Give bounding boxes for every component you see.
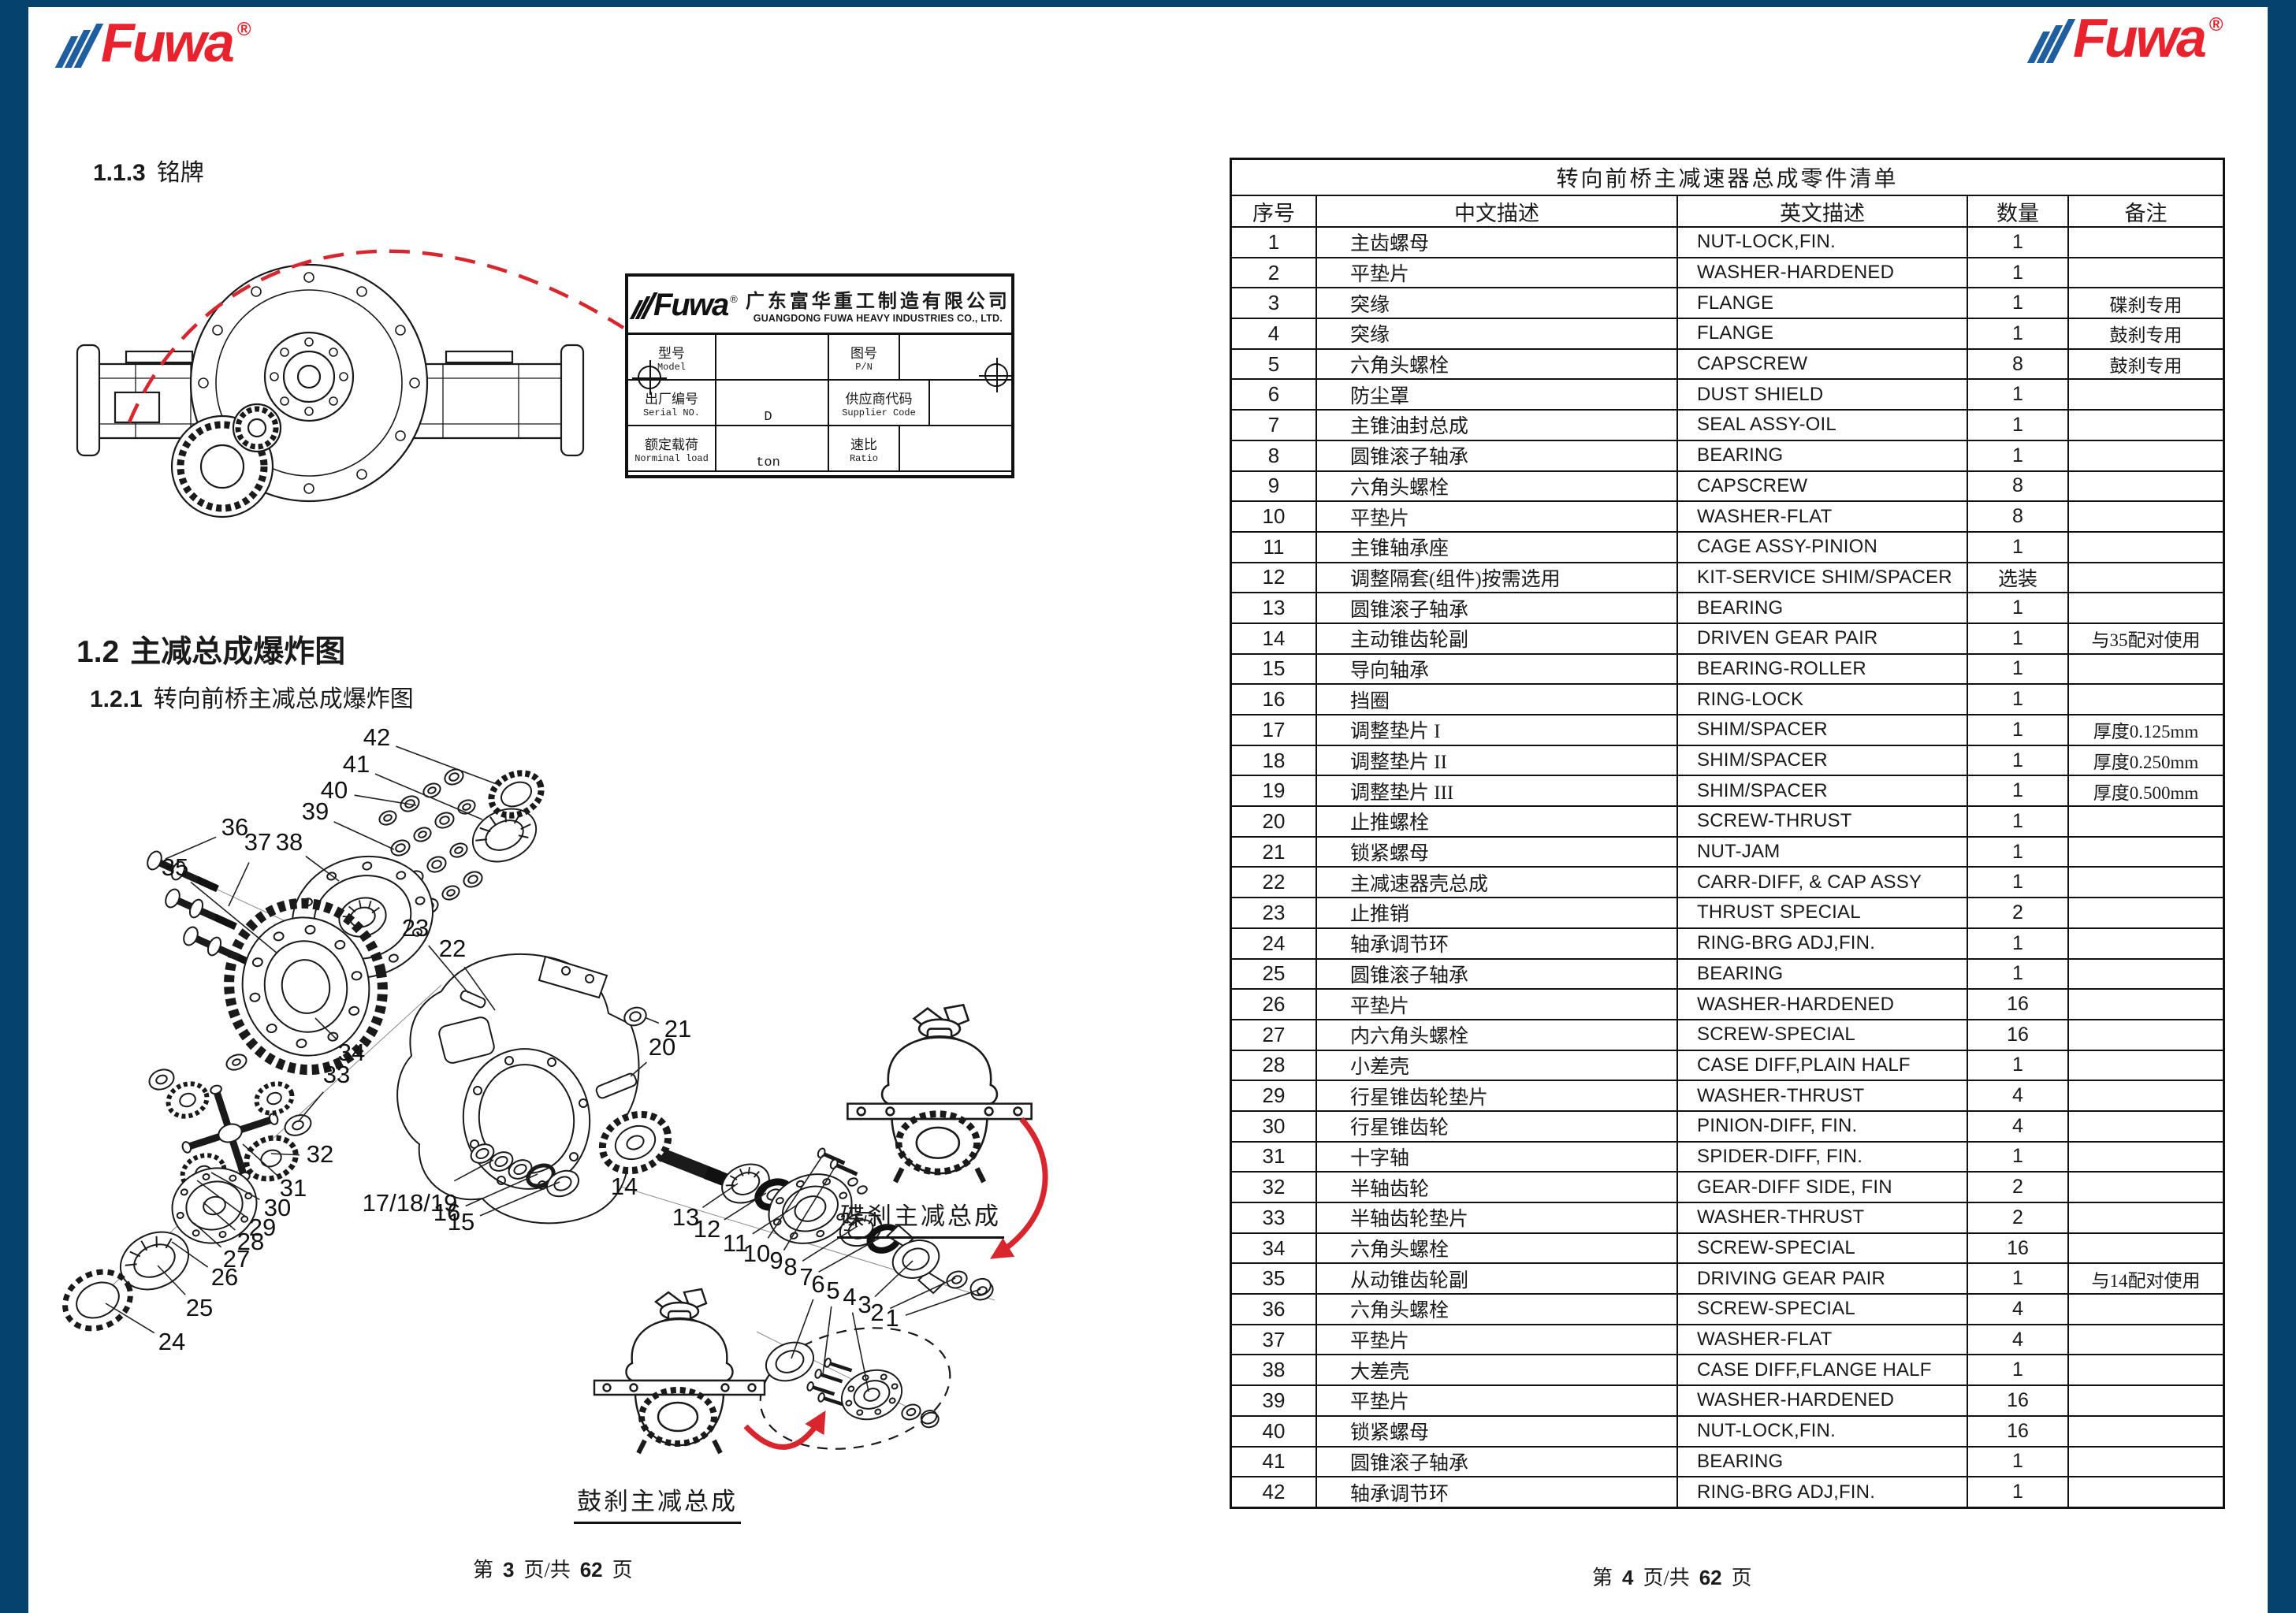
part-number-label: 42: [363, 723, 390, 751]
field-value: D: [716, 381, 829, 425]
table-cell: 调整垫片 II: [1317, 746, 1678, 775]
thrust-washer-33: [282, 1112, 314, 1139]
field-value: [930, 381, 1011, 425]
table-cell: 圆锥滚子轴承: [1317, 1448, 1678, 1477]
table-cell: 30: [1232, 1112, 1317, 1141]
table-cell: BEARING: [1678, 1448, 1968, 1477]
table-row: 12调整隔套(组件)按需选用KIT-SERVICE SHIM/SPACER选装: [1232, 563, 2223, 594]
fuwa-logo-left: Fuwa ®: [63, 17, 251, 68]
table-cell: 主锥轴承座: [1317, 533, 1678, 562]
washer-10b: [857, 1184, 869, 1195]
table-cell: 1: [1968, 929, 2069, 958]
table-cell: [2069, 563, 2223, 593]
table-cell: SCREW-SPECIAL: [1678, 1234, 1968, 1263]
part-number-label: 20: [649, 1033, 675, 1061]
part-number-label: 24: [158, 1328, 185, 1355]
section-title: 主减总成爆炸图: [130, 635, 345, 669]
section-number: 1.2.1: [90, 686, 143, 712]
table-cell: [2069, 838, 2223, 867]
footer-text: 页/共: [523, 1559, 570, 1581]
fuwa-logo-right: Fuwa ®: [2035, 13, 2223, 63]
table-cell: 大差壳: [1317, 1355, 1678, 1384]
part-number-label: 26: [211, 1263, 238, 1291]
registration-mark-icon: [984, 363, 1008, 387]
table-cell: [2069, 1051, 2223, 1080]
table-cell: 1: [1968, 380, 2069, 409]
table-cell: NUT-JAM: [1678, 838, 1968, 867]
axle-drawing: [77, 265, 583, 517]
disc-brake-assembly-view: [847, 1005, 1031, 1182]
part-number-label: 12: [694, 1215, 720, 1243]
table-cell: DUST SHIELD: [1678, 380, 1968, 409]
table-cell: [2069, 472, 2223, 501]
table-cell: 平垫片: [1317, 1386, 1678, 1415]
exploded-diagram: [55, 765, 1045, 1466]
page-footer-right: 第4页/共62页: [1592, 1562, 1752, 1591]
table-row: 3突缘FLANGE1碟刹专用: [1232, 288, 2223, 319]
table-cell: BEARING: [1678, 441, 1968, 470]
drum-brake-assembly-view: [594, 1289, 765, 1453]
table-cell: 8: [1232, 441, 1317, 470]
company-name-en: GUANGDONG FUWA HEAVY INDUSTRIES CO., LTD…: [746, 313, 1010, 324]
table-cell: SCREW-THRUST: [1678, 807, 1968, 836]
table-cell: 33: [1232, 1203, 1317, 1232]
table-row: 21锁紧螺母NUT-JAM1: [1232, 838, 2223, 868]
field-label-cn: 速比: [850, 433, 877, 453]
table-cell: 调整隔套(组件)按需选用: [1317, 563, 1678, 593]
part-number-label: 41: [343, 750, 370, 778]
table-cell: 23: [1232, 898, 1317, 927]
page-footer-left: 第3页/共62页: [473, 1554, 633, 1583]
leader-line: [334, 822, 394, 849]
table-row: 29行星锥齿轮垫片WASHER-THRUST4: [1232, 1081, 2223, 1112]
table-cell: 半轴齿轮垫片: [1317, 1203, 1678, 1232]
table-cell: 厚度0.125mm: [2069, 715, 2223, 745]
table-cell: 1: [1968, 411, 2069, 440]
table-cell: 4: [1968, 1081, 2069, 1110]
total-pages: 62: [580, 1558, 603, 1581]
table-cell: SHIM/SPACER: [1678, 746, 1968, 775]
section-number: 1.2: [76, 635, 119, 669]
table-cell: 1: [1968, 533, 2069, 562]
table-cell: [2069, 1020, 2223, 1050]
field-label-en: Ratio: [850, 453, 878, 464]
table-cell: RING-BRG ADJ,FIN.: [1678, 929, 1968, 958]
table-cell: 1: [1968, 593, 2069, 623]
table-row: 18调整垫片 IISHIM/SPACER1厚度0.250mm: [1232, 746, 2223, 777]
table-cell: 从动锥齿轮副: [1317, 1264, 1678, 1293]
part-number-label: 25: [186, 1294, 213, 1321]
leader-line: [106, 1303, 154, 1333]
table-cell: 圆锥滚子轴承: [1317, 593, 1678, 623]
table-cell: 平垫片: [1317, 502, 1678, 531]
table-cell: 14: [1232, 624, 1317, 653]
table-cell: 35: [1232, 1264, 1317, 1293]
table-cell: 8: [1968, 350, 2069, 379]
table-cell: CASE DIFF,PLAIN HALF: [1678, 1051, 1968, 1080]
table-cell: WASHER-FLAT: [1678, 502, 1968, 531]
part-number-label: 38: [276, 828, 303, 856]
table-row: 40锁紧螺母NUT-LOCK,FIN.16: [1232, 1417, 2223, 1448]
table-cell: 圆锥滚子轴承: [1317, 960, 1678, 989]
table-cell: 1: [1968, 1143, 2069, 1172]
table-cell: 十字轴: [1317, 1143, 1678, 1172]
table-cell: 29: [1232, 1081, 1317, 1110]
table-cell: 36: [1232, 1295, 1317, 1324]
table-cell: 1: [1968, 807, 2069, 836]
table-cell: DRIVEN GEAR PAIR: [1678, 624, 1968, 653]
table-cell: FLANGE: [1678, 319, 1968, 348]
field-label-en: P/N: [855, 362, 873, 373]
registered-mark: ®: [237, 19, 251, 41]
table-cell: FLANGE: [1678, 288, 1968, 318]
table-cell: 1: [1968, 441, 2069, 470]
fuwa-logo-slashes-icon: [63, 24, 96, 68]
table-row: 2平垫片WASHER-HARDENED1: [1232, 258, 2223, 289]
table-cell: WASHER-HARDENED: [1678, 258, 1968, 288]
table-body: 1主齿螺母NUT-LOCK,FIN.12平垫片WASHER-HARDENED13…: [1232, 228, 2223, 1507]
part-number-label: 4: [843, 1283, 856, 1310]
table-cell: [2069, 502, 2223, 531]
table-cell: [2069, 1143, 2223, 1172]
part-number-label: 35: [162, 853, 188, 881]
company-name-cn: 广东富华重工制造有限公司: [746, 285, 1010, 313]
table-cell: 1: [1968, 1477, 2069, 1507]
table-cell: CAGE ASSY-PINION: [1678, 533, 1968, 562]
table-cell: THRUST SPECIAL: [1678, 898, 1968, 927]
table-cell: 突缘: [1317, 319, 1678, 348]
table-cell: CASE DIFF,FLANGE HALF: [1678, 1355, 1968, 1384]
parts-list-table: 转向前桥主减速器总成零件清单 序号 中文描述 英文描述 数量 备注 1主齿螺母N…: [1230, 158, 2225, 1509]
table-cell: [2069, 441, 2223, 470]
field-label-en: Supplier Code: [842, 407, 916, 418]
table-row: 24轴承调节环RING-BRG ADJ,FIN.1: [1232, 929, 2223, 960]
table-row: 34六角头螺栓SCREW-SPECIAL16: [1232, 1234, 2223, 1265]
table-cell: BEARING: [1678, 960, 1968, 989]
table-row: 26平垫片WASHER-HARDENED16: [1232, 990, 2223, 1020]
table-row: 32半轴齿轮GEAR-DIFF SIDE, FIN2: [1232, 1173, 2223, 1203]
table-row: 27内六角头螺栓SCREW-SPECIAL16: [1232, 1020, 2223, 1051]
table-cell: 平垫片: [1317, 258, 1678, 288]
table-cell: 40: [1232, 1417, 1317, 1446]
table-cell: 16: [1968, 1417, 2069, 1446]
washer-10: [847, 1176, 859, 1187]
table-cell: 与14配对使用: [2069, 1264, 2223, 1293]
part-number-label: 6: [811, 1270, 824, 1298]
table-cell: 锁紧螺母: [1317, 1417, 1678, 1446]
table-row: 1主齿螺母NUT-LOCK,FIN.1: [1232, 228, 2223, 258]
table-cell: 4: [1232, 319, 1317, 348]
footer-text: 页: [612, 1559, 633, 1581]
nut-1b: [918, 1408, 940, 1430]
table-row: 15导向轴承BEARING-ROLLER1: [1232, 655, 2223, 686]
table-cell: SHIM/SPACER: [1678, 715, 1968, 745]
table-row: 38大差壳CASE DIFF,FLANGE HALF1: [1232, 1355, 2223, 1386]
table-cell: [2069, 258, 2223, 288]
field-label-en: Model: [657, 362, 686, 373]
table-cell: 小差壳: [1317, 1051, 1678, 1080]
table-cell: 圆锥滚子轴承: [1317, 441, 1678, 470]
table-cell: 21: [1232, 838, 1317, 867]
table-row: 13圆锥滚子轴承BEARING1: [1232, 593, 2223, 624]
table-cell: 1: [1968, 1264, 2069, 1293]
table-cell: 1: [1968, 868, 2069, 897]
table-cell: [2069, 1386, 2223, 1415]
table-cell: 32: [1232, 1173, 1317, 1202]
table-cell: 六角头螺栓: [1317, 1234, 1678, 1263]
table-cell: 行星锥齿轮垫片: [1317, 1081, 1678, 1110]
nameplate-header: Fuwa ® 广东富华重工制造有限公司 GUANGDONG FUWA HEAVY…: [628, 277, 1011, 335]
table-cell: 1: [1232, 228, 1317, 257]
table-cell: 25: [1232, 960, 1317, 989]
footer-text: 页: [1732, 1567, 1752, 1589]
table-cell: 39: [1232, 1386, 1317, 1415]
table-cell: [2069, 1203, 2223, 1232]
table-cell: 10: [1232, 502, 1317, 531]
table-cell: 17: [1232, 715, 1317, 745]
table-cell: [2069, 1325, 2223, 1355]
table-cell: 六角头螺栓: [1317, 472, 1678, 501]
table-cell: 4: [1968, 1112, 2069, 1141]
table-cell: BEARING-ROLLER: [1678, 655, 1968, 684]
table-cell: 19: [1232, 776, 1317, 805]
table-cell: 13: [1232, 593, 1317, 623]
table-cell: 20: [1232, 807, 1317, 836]
table-cell: SEAL ASSY-OIL: [1678, 411, 1968, 440]
table-cell: 1: [1968, 685, 2069, 714]
part-number-label: 37: [244, 828, 271, 856]
table-cell: 2: [1968, 898, 2069, 927]
table-cell: WASHER-HARDENED: [1678, 1386, 1968, 1415]
field-label-cn: 图号: [850, 342, 877, 362]
footer-text: 第: [473, 1559, 493, 1581]
table-cell: 平垫片: [1317, 990, 1678, 1019]
table-cell: [2069, 929, 2223, 958]
table-cell: 42: [1232, 1477, 1317, 1507]
table-cell: 轴承调节环: [1317, 929, 1678, 958]
table-cell: 8: [1968, 502, 2069, 531]
table-cell: 31: [1232, 1143, 1317, 1172]
table-cell: BEARING: [1678, 593, 1968, 623]
table-cell: 16: [1968, 1020, 2069, 1050]
table-row: 41圆锥滚子轴承BEARING1: [1232, 1448, 2223, 1478]
part-number-label: 9: [769, 1247, 783, 1274]
table-cell: [2069, 1477, 2223, 1507]
nameplate-row: 额定载荷Norminal load ton 速比Ratio: [628, 426, 1011, 472]
table-cell: RING-LOCK: [1678, 685, 1968, 714]
table-row: 8圆锥滚子轴承BEARING1: [1232, 441, 2223, 472]
leader-line: [646, 1018, 659, 1023]
table-row: 39平垫片WASHER-HARDENED16: [1232, 1386, 2223, 1417]
table-row: 4突缘FLANGE1鼓刹专用: [1232, 319, 2223, 350]
table-cell: 厚度0.500mm: [2069, 776, 2223, 805]
part-number-label: 5: [826, 1277, 839, 1304]
table-cell: PINION-DIFF, FIN.: [1678, 1112, 1968, 1141]
table-row: 19调整垫片 IIISHIM/SPACER1厚度0.500mm: [1232, 776, 2223, 807]
column-header: 英文描述: [1678, 196, 1968, 226]
table-cell: [2069, 380, 2223, 409]
table-cell: 1: [1968, 746, 2069, 775]
table-cell: [2069, 868, 2223, 897]
table-cell: SHIM/SPACER: [1678, 776, 1968, 805]
table-cell: WASHER-THRUST: [1678, 1203, 1968, 1232]
table-cell: 6: [1232, 380, 1317, 409]
table-cell: WASHER-THRUST: [1678, 1081, 1968, 1110]
table-cell: 突缘: [1317, 288, 1678, 318]
part-number-label: 39: [302, 797, 329, 825]
table-cell: 3: [1232, 288, 1317, 318]
table-row: 16挡圈RING-LOCK1: [1232, 685, 2223, 715]
table-cell: [2069, 228, 2223, 257]
table-cell: 9: [1232, 472, 1317, 501]
part-number-label: 23: [402, 914, 429, 942]
leader-line: [298, 1092, 323, 1122]
table-cell: 锁紧螺母: [1317, 838, 1678, 867]
part-number-label: 8: [783, 1253, 797, 1280]
table-cell: 2: [1232, 258, 1317, 288]
table-cell: 1: [1968, 715, 2069, 745]
field-label-en: Serial NO.: [643, 407, 700, 418]
part-number-label: 2: [870, 1299, 884, 1326]
table-cell: 平垫片: [1317, 1325, 1678, 1355]
fuwa-wordmark: Fuwa: [2073, 13, 2205, 63]
table-cell: [2069, 1081, 2223, 1110]
nameplate: Fuwa ® 广东富华重工制造有限公司 GUANGDONG FUWA HEAVY…: [625, 273, 1014, 478]
nameplate-row: 出厂编号Serial NO. D 供应商代码Supplier Code: [628, 381, 1011, 426]
table-cell: WASHER-HARDENED: [1678, 990, 1968, 1019]
table-row: 37平垫片WASHER-FLAT4: [1232, 1325, 2223, 1356]
table-cell: 34: [1232, 1234, 1317, 1263]
table-cell: 38: [1232, 1355, 1317, 1384]
table-cell: 碟刹专用: [2069, 288, 2223, 318]
table-cell: 半轴齿轮: [1317, 1173, 1678, 1202]
table-cell: [2069, 960, 2223, 989]
nameplate-fuwa-logo: Fuwa ®: [634, 291, 738, 319]
table-cell: 1: [1968, 776, 2069, 805]
field-label-en: Norminal load: [634, 453, 709, 464]
part-number-label: 10: [743, 1239, 770, 1267]
registered-mark: ®: [730, 293, 738, 305]
table-cell: [2069, 1355, 2223, 1384]
table-cell: 2: [1968, 1203, 2069, 1232]
table-cell: NUT-LOCK,FIN.: [1678, 228, 1968, 257]
part-number-label: 3: [858, 1291, 871, 1318]
table-cell: DRIVING GEAR PAIR: [1678, 1264, 1968, 1293]
footer-text: 第: [1592, 1567, 1613, 1589]
table-row: 33半轴齿轮垫片WASHER-THRUST2: [1232, 1203, 2223, 1234]
table-cell: SCREW-SPECIAL: [1678, 1295, 1968, 1324]
diff-pinion-30b: [252, 1079, 296, 1118]
table-cell: [2069, 807, 2223, 836]
field-label-cn: 型号: [658, 342, 685, 362]
section-1-2-1-heading: 1.2.1转向前桥主减总成爆炸图: [90, 679, 414, 714]
table-cell: 主锥油封总成: [1317, 411, 1678, 440]
registration-mark-icon: [638, 366, 661, 389]
table-cell: 鼓刹专用: [2069, 350, 2223, 379]
table-cell: GEAR-DIFF SIDE, FIN: [1678, 1173, 1968, 1202]
table-cell: 六角头螺栓: [1317, 350, 1678, 379]
table-cell: [2069, 533, 2223, 562]
table-row: 22主减速器壳总成CARR-DIFF, & CAP ASSY1: [1232, 868, 2223, 898]
table-cell: 2: [1968, 1173, 2069, 1202]
table-row: 9六角头螺栓CAPSCREW8: [1232, 472, 2223, 503]
drum-brake-assembly-caption: 鼓刹主减总成: [574, 1481, 741, 1524]
table-cell: 7: [1232, 411, 1317, 440]
part-number-label: 14: [611, 1173, 638, 1200]
section-title: 铭牌: [157, 160, 204, 186]
table-cell: 1: [1968, 655, 2069, 684]
table-title: 转向前桥主减速器总成零件清单: [1232, 160, 2223, 196]
field-label-cn: 额定载荷: [645, 433, 698, 453]
part-number-label: 33: [323, 1061, 350, 1088]
footer-text: 页/共: [1643, 1567, 1689, 1589]
nameplate-row: 型号Model 图号P/N: [628, 335, 1011, 381]
part-number-label: 1: [885, 1304, 899, 1332]
table-cell: 18: [1232, 746, 1317, 775]
table-cell: 26: [1232, 990, 1317, 1019]
table-cell: [2069, 1448, 2223, 1477]
table-row: 23止推销THRUST SPECIAL2: [1232, 898, 2223, 929]
table-row: 6防尘罩DUST SHIELD1: [1232, 380, 2223, 411]
table-row: 25圆锥滚子轴承BEARING1: [1232, 960, 2223, 990]
table-cell: 11: [1232, 533, 1317, 562]
table-cell: SPIDER-DIFF, FIN.: [1678, 1143, 1968, 1172]
table-cell: [2069, 990, 2223, 1019]
table-cell: 鼓刹专用: [2069, 319, 2223, 348]
table-cell: 1: [1968, 1448, 2069, 1477]
table-cell: 选装: [1968, 563, 2069, 593]
table-cell: [2069, 1112, 2223, 1141]
table-cell: SCREW-SPECIAL: [1678, 1020, 1968, 1050]
table-row: 5六角头螺栓CAPSCREW8鼓刹专用: [1232, 350, 2223, 381]
table-cell: 1: [1968, 1051, 2069, 1080]
capscrew-5a: [814, 1369, 843, 1385]
table-cell: [2069, 1295, 2223, 1324]
table-cell: [2069, 1173, 2223, 1202]
section-number: 1.1.3: [93, 160, 146, 186]
table-cell: 厚度0.250mm: [2069, 746, 2223, 775]
manual-page-spread: 4241403936373835232221203433323130292827…: [0, 0, 2296, 1613]
table-cell: 调整垫片 III: [1317, 776, 1678, 805]
table-cell: 12: [1232, 563, 1317, 593]
field-value: ton: [716, 426, 829, 470]
field-value: [716, 335, 829, 379]
table-cell: 行星锥齿轮: [1317, 1112, 1678, 1141]
table-cell: 六角头螺栓: [1317, 1295, 1678, 1324]
table-cell: 主齿螺母: [1317, 228, 1678, 257]
table-row: 35从动锥齿轮副DRIVING GEAR PAIR1与14配对使用: [1232, 1264, 2223, 1295]
table-cell: 16: [1232, 685, 1317, 714]
table-cell: 1: [1968, 319, 2069, 348]
table-cell: 内六角头螺栓: [1317, 1020, 1678, 1050]
thrust-washer-29b: [225, 1052, 249, 1072]
part-number-label: 32: [307, 1140, 333, 1168]
table-cell: 16: [1968, 990, 2069, 1019]
table-cell: 1: [1968, 960, 2069, 989]
table-cell: CARR-DIFF, & CAP ASSY: [1678, 868, 1968, 897]
table-cell: 主减速器壳总成: [1317, 868, 1678, 897]
table-row: 31十字轴SPIDER-DIFF, FIN.1: [1232, 1143, 2223, 1173]
field-value: [900, 426, 1011, 470]
table-cell: 1: [1968, 258, 2069, 288]
table-cell: 导向轴承: [1317, 655, 1678, 684]
fuwa-wordmark: Fuwa: [101, 17, 233, 68]
leader-line: [906, 1289, 981, 1315]
table-cell: [2069, 411, 2223, 440]
page-number: 4: [1622, 1566, 1633, 1589]
table-cell: 轴承调节环: [1317, 1477, 1678, 1507]
table-row: 20止推螺栓SCREW-THRUST1: [1232, 807, 2223, 838]
